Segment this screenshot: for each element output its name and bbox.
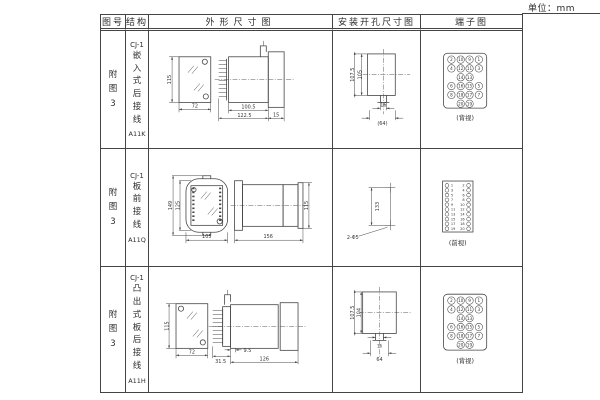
svg-text:12: 12 [458,307,464,312]
dim-front-height: 115 [167,75,173,84]
svg-text:1: 1 [451,184,453,188]
svg-text:7: 7 [478,333,481,338]
svg-text:16: 16 [460,217,465,221]
dim-total-length: 122.5 [237,113,251,119]
svg-text:2: 2 [462,184,464,188]
row3-outline-cell: 115 72 9.5 31.5 126 [149,267,333,392]
svg-text:6: 6 [450,325,453,330]
terminal-diagram-a11q: 1357911131517192468101214161820 (前视) [421,149,522,266]
row1-structure: CJ-1 嵌 入 式 后 接 线 A11K [126,31,149,149]
structure-text: 凸 出 式 板 后 接 线 [133,283,142,372]
svg-text:6: 6 [450,84,453,89]
dim-hole-spacing: 133 [375,202,381,211]
svg-text:20: 20 [458,101,464,106]
hole-pattern [369,183,396,230]
svg-text:10: 10 [458,298,464,303]
dim-side-length: 156 [264,234,273,240]
terminal-grid-back: 2109141211314136161558181772019 [448,56,483,108]
svg-text:6: 6 [462,193,465,197]
row3-figure-no: 附 图 3 [101,267,126,392]
model-label: CJ-1 [130,172,144,180]
svg-text:8: 8 [450,333,453,338]
svg-text:13: 13 [467,75,473,80]
terminal-diagram-a11h: 2109141211314136161558181772019 (背视) [421,267,522,392]
model-code: A11H [128,377,146,385]
terminal-grid-back: 2109141211314136161558181772019 [448,297,483,349]
svg-text:20: 20 [458,342,464,347]
svg-text:17: 17 [451,222,455,226]
unit-underline [522,13,600,14]
header-terminal: 端子图 [421,15,522,31]
row3-structure: CJ-1 凸 出 式 板 后 接 线 A11H [126,267,149,392]
svg-text:17: 17 [467,92,473,97]
svg-text:1: 1 [478,298,481,303]
svg-text:11: 11 [467,66,473,71]
row2-figure-no: 附 图 3 [101,149,126,267]
svg-text:8: 8 [462,198,464,202]
hole-spec-label: 2-Φ5 [347,235,359,241]
svg-text:7: 7 [478,92,481,97]
svg-text:18: 18 [458,333,464,338]
svg-text:15: 15 [467,325,473,330]
model-code: A11Q [128,236,146,244]
dim-body-length: 100.5 [241,104,255,110]
svg-text:9: 9 [468,57,471,62]
svg-text:4: 4 [450,66,453,71]
dim-slot-width: 16 [377,343,383,348]
svg-text:15: 15 [451,217,455,221]
terminal-diagram-a11k: 2109141211314136161558181772019 (背视) [421,31,522,148]
header-structure: 结构 [126,15,149,31]
outline-drawing-a11k: 115 72 100.5 122.5 15 [149,31,332,148]
svg-text:10: 10 [458,57,464,62]
svg-text:14: 14 [458,75,464,80]
svg-text:3: 3 [451,189,453,193]
terminal-caption: (前视) [449,238,467,247]
dim-ref-width: (64) [377,121,387,127]
svg-text:9: 9 [451,203,453,207]
row1-figure-no: 附 图 3 [101,31,126,149]
dim-seg1: 31.5 [215,359,226,365]
row1-terminal-cell: 2109141211314136161558181772019 (背视) [421,31,522,149]
svg-text:19: 19 [467,342,473,347]
svg-text:11: 11 [467,307,473,312]
dim-flange: 15 [273,112,279,118]
model-code: A11K [129,130,146,138]
dim-side-height: 115 [304,201,310,210]
dim-slot-width: 16 [380,102,386,108]
svg-text:5: 5 [451,193,453,197]
dim-front-width: 105 [202,234,211,240]
dim-front-width: 72 [192,103,198,109]
svg-text:2: 2 [450,298,453,303]
dim-front-outer-height: 149 [168,201,174,210]
dim-cutout-inner: 104 [357,308,363,317]
dim-front-inner-height: 125 [176,201,182,210]
relay-side-view [215,41,294,107]
structure-text: 板 前 接 线 [133,181,142,232]
svg-text:19: 19 [451,227,455,231]
svg-text:17: 17 [467,333,473,338]
terminal-caption: (背视) [456,356,474,365]
svg-text:14: 14 [458,316,464,321]
svg-text:4: 4 [462,189,465,193]
svg-text:16: 16 [458,325,464,330]
svg-text:9: 9 [468,298,471,303]
relay-side-view [209,290,306,351]
svg-text:13: 13 [451,213,455,217]
svg-text:16: 16 [458,84,464,89]
row3-terminal-cell: 2109141211314136161558181772019 (背视) [421,267,522,392]
dim-front-width: 72 [189,349,195,355]
dim-total-length: 126 [260,356,269,362]
dim-seg2: 9.5 [243,348,251,354]
model-label: CJ-1 [130,41,144,49]
outline-drawing-a11h: 115 72 9.5 31.5 126 [149,267,332,392]
dim-front-height: 115 [165,321,171,330]
structure-text: 嵌 入 式 后 接 线 [133,50,142,127]
svg-text:3: 3 [478,307,481,312]
svg-text:20: 20 [460,227,464,231]
row2-terminal-cell: 1357911131517192468101214161820 (前视) [421,149,522,267]
figure-no-text: 附 图 3 [109,68,118,111]
relay-side-view [231,181,310,231]
svg-text:4: 4 [450,307,453,312]
mounting-drawing-a11h: 107.5 104 16 64 [333,267,420,392]
header-mounting: 安装开孔尺寸图 [333,15,421,31]
dimension-table: 图号 结构 外形尺寸图 安装开孔尺寸图 端子图 附 图 3 CJ-1 嵌 入 式… [100,14,523,393]
mounting-drawing-a11k: 107.5 105 16 (64) [333,31,420,148]
model-label: CJ-1 [130,274,144,282]
relay-front-view [186,176,228,235]
svg-text:10: 10 [460,203,464,207]
row2-mounting-cell: 133 2-Φ5 [333,149,421,267]
svg-text:18: 18 [460,222,464,226]
figure-no-text: 附 图 3 [109,186,118,229]
header-figure-no: 图号 [101,15,126,31]
header-outline: 外形尺寸图 [149,15,333,31]
svg-text:8: 8 [450,92,453,97]
mounting-drawing-a11q: 133 2-Φ5 [333,149,420,266]
svg-text:5: 5 [478,84,481,89]
outline-drawing-a11q: 149 125 105 156 115 [149,149,332,266]
row1-mounting-cell: 107.5 105 16 (64) [333,31,421,149]
row3-mounting-cell: 107.5 104 16 64 [333,267,421,392]
svg-text:1: 1 [478,57,481,62]
row1-outline-cell: 115 72 100.5 122.5 15 [149,31,333,149]
relay-front-view [179,57,211,103]
svg-text:12: 12 [458,66,464,71]
svg-text:19: 19 [467,101,473,106]
dim-cutout-inner: 105 [358,70,364,79]
svg-text:3: 3 [478,66,481,71]
row2-outline-cell: 149 125 105 156 115 [149,149,333,267]
relay-front-view [176,304,208,349]
terminal-grid-front: 1357911131517192468101214161820 [445,184,470,231]
svg-text:15: 15 [467,84,473,89]
terminal-caption: (背视) [456,113,474,122]
svg-text:11: 11 [451,208,455,212]
svg-text:5: 5 [478,325,481,330]
svg-text:18: 18 [458,92,464,97]
dim-cutout-outer: 107.5 [350,306,356,320]
dim-cutout-outer: 107.5 [350,68,356,82]
svg-text:14: 14 [460,213,465,217]
panel-cutout [359,287,412,358]
manual-page: 单位：mm 图号 结构 外形尺寸图 安装开孔尺寸图 端子图 附 图 3 CJ-1… [0,0,600,400]
svg-text:12: 12 [460,208,464,212]
dim-bottom-width: 64 [376,357,382,363]
svg-text:2: 2 [450,57,453,62]
figure-no-text: 附 图 3 [109,308,118,351]
row2-structure: CJ-1 板 前 接 线 A11Q [126,149,149,267]
svg-text:13: 13 [467,316,473,321]
svg-text:7: 7 [451,198,453,202]
